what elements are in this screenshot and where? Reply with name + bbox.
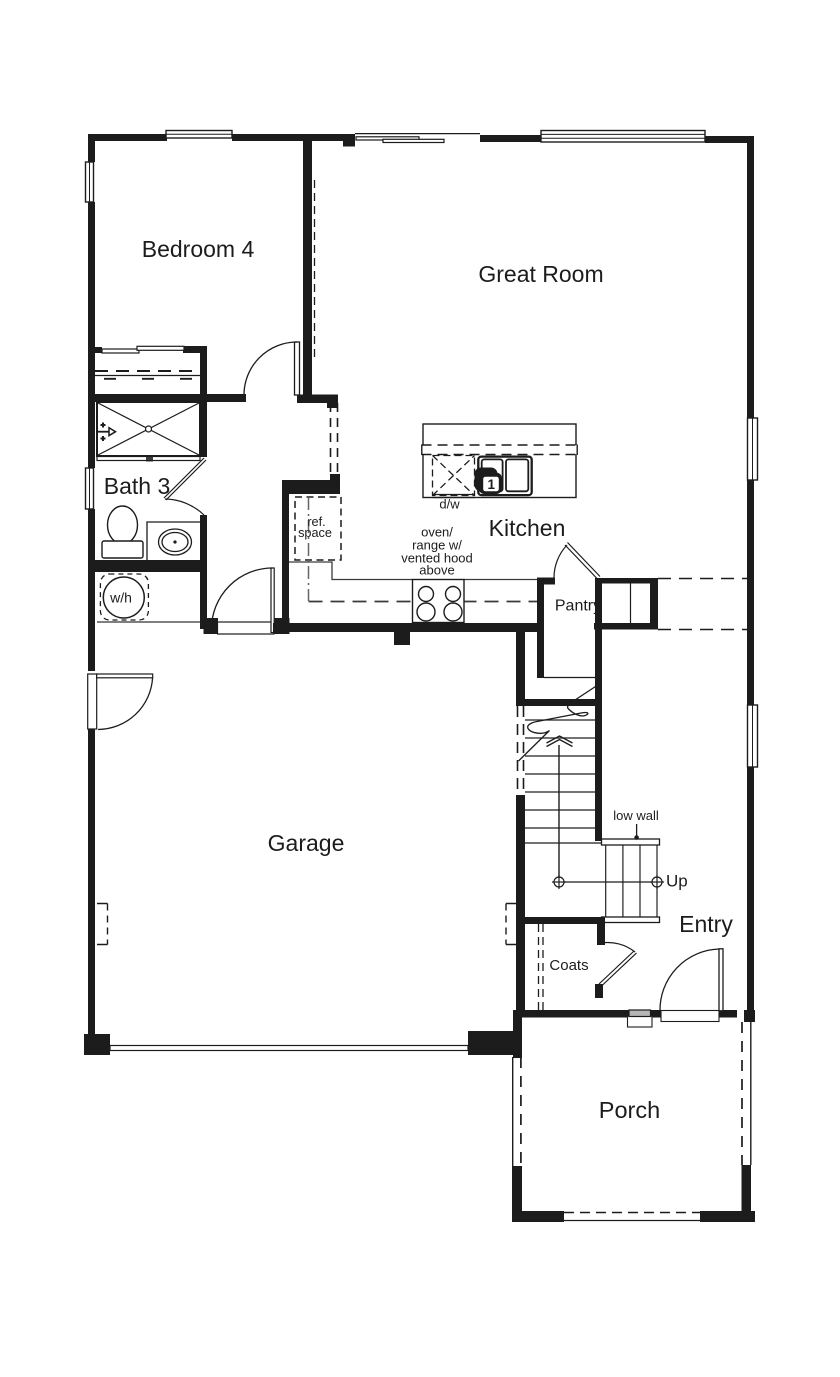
svg-text:Bath 3: Bath 3	[104, 473, 171, 499]
svg-text:Bedroom 4: Bedroom 4	[142, 236, 255, 262]
svg-text:low wall: low wall	[613, 808, 659, 823]
svg-text:Kitchen: Kitchen	[489, 515, 566, 541]
svg-text:Porch: Porch	[599, 1097, 660, 1123]
svg-text:Great Room: Great Room	[478, 261, 603, 287]
svg-text:space: space	[298, 526, 332, 540]
svg-text:d/w: d/w	[439, 497, 460, 512]
svg-text:w/h: w/h	[109, 590, 132, 606]
svg-text:Pantry: Pantry	[555, 598, 601, 615]
svg-text:Coats: Coats	[549, 957, 588, 974]
svg-text:above: above	[419, 563, 454, 578]
svg-text:Up: Up	[666, 872, 688, 891]
svg-text:Entry: Entry	[679, 911, 733, 937]
svg-text:Garage: Garage	[268, 830, 345, 856]
svg-text:1: 1	[488, 477, 496, 492]
